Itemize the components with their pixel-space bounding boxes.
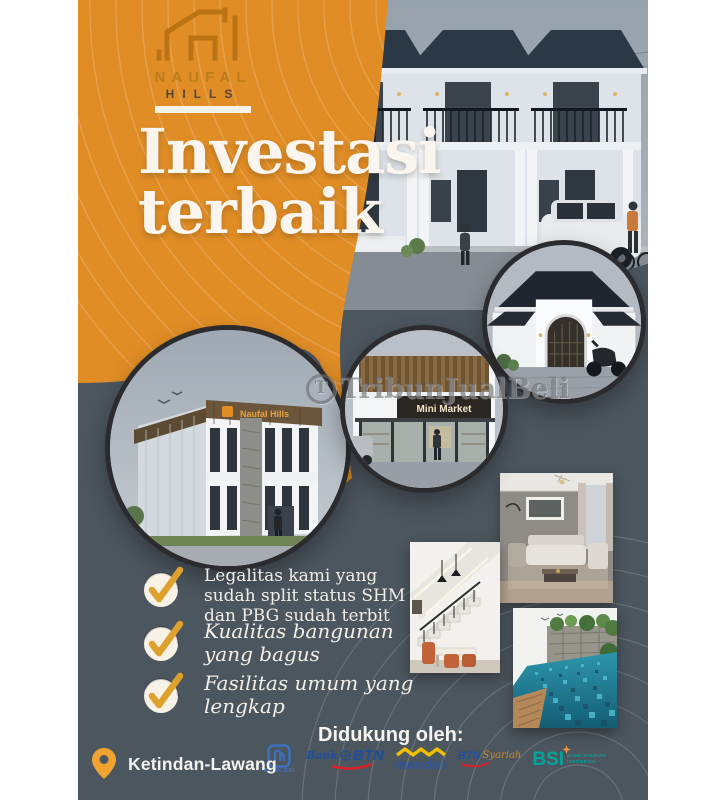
btn-script-text: Bank [306, 750, 338, 761]
watermark-text: TribunJualBeli [340, 372, 570, 405]
brand-name-bottom: HILLS [128, 87, 278, 101]
checklist-line: sudah split status SHM [204, 586, 405, 606]
checklist-line: yang bagus [204, 643, 394, 666]
bank-btn-syariah-logo: BTN Syariah [458, 751, 521, 768]
watermark: T TribunJualBeli [306, 372, 570, 405]
bank-bsi-logo: BSI BANK SYARIAH INDONESIA [532, 750, 606, 769]
checkmark-icon [142, 672, 188, 716]
checklist-item-legality: Legalitas kami yang sudah split status S… [142, 566, 405, 626]
checklist-item-quality: Kualitas bangunan yang bagus [142, 620, 394, 666]
house-logo-icon [151, 6, 255, 62]
office-sign-text: Naufal Hills [240, 409, 289, 419]
bank-mandiri-logo: mandiri [395, 747, 447, 771]
living-room-photo [500, 473, 613, 603]
btn-syariah-bold-text: BTN [458, 751, 481, 762]
btn-syariah-script-text: Syariah [483, 751, 522, 761]
bsi-bold-text: BSI [532, 750, 564, 769]
location-row: Ketindan-Lawang [92, 748, 277, 780]
stairs-dining-photo [410, 542, 500, 673]
checkmark-icon [142, 620, 188, 664]
checklist-line: Fasilitas umum yang [204, 672, 413, 695]
poster: NAUFAL HILLS Investasi terbaik [78, 0, 648, 800]
btn-syariah-red-swoosh [460, 762, 490, 768]
person-silhouette [274, 509, 282, 539]
checkmark-icon [142, 566, 188, 610]
location-pin-icon [92, 748, 116, 780]
btn-emblem-icon [340, 750, 351, 761]
minimarket-sign-text: Mini Market [416, 404, 472, 415]
poster-canvas: NAUFAL HILLS Investasi terbaik [0, 0, 724, 800]
bsi-star-icon [562, 745, 571, 754]
mandiri-name: mandiri [396, 758, 446, 771]
headline: Investasi terbaik [138, 122, 441, 242]
watermark-logo-icon: T [306, 374, 336, 404]
bank-btn-logo: Bank BTN [306, 748, 384, 771]
brand-name-top: NAUFAL [128, 69, 278, 86]
checklist-item-facilities: Fasilitas umum yang lengkap [142, 672, 413, 718]
checklist-line: Legalitas kami yang [204, 566, 405, 586]
checklist-line: Kualitas bangunan [204, 620, 394, 643]
headline-line1: Investasi [138, 122, 441, 182]
headline-line2: terbaik [138, 182, 441, 242]
btn-red-swoosh [331, 763, 373, 771]
btn-bold-text: BTN [353, 748, 384, 763]
location-text: Ketindan-Lawang [128, 754, 277, 775]
checklist-line: lengkap [204, 695, 413, 718]
brand-underline-bar [155, 106, 251, 113]
bsi-small-line2: INDONESIA [567, 760, 606, 765]
brand-logo: NAUFAL HILLS [128, 6, 278, 113]
bank-logos-row: BANK BRI Bank BTN [264, 744, 606, 775]
office-building-photo: Naufal Hills [105, 325, 351, 571]
minimarket-photo: Mini Market [340, 325, 508, 493]
mandiri-wave-icon [395, 747, 447, 757]
pool-garden-photo [513, 608, 617, 728]
